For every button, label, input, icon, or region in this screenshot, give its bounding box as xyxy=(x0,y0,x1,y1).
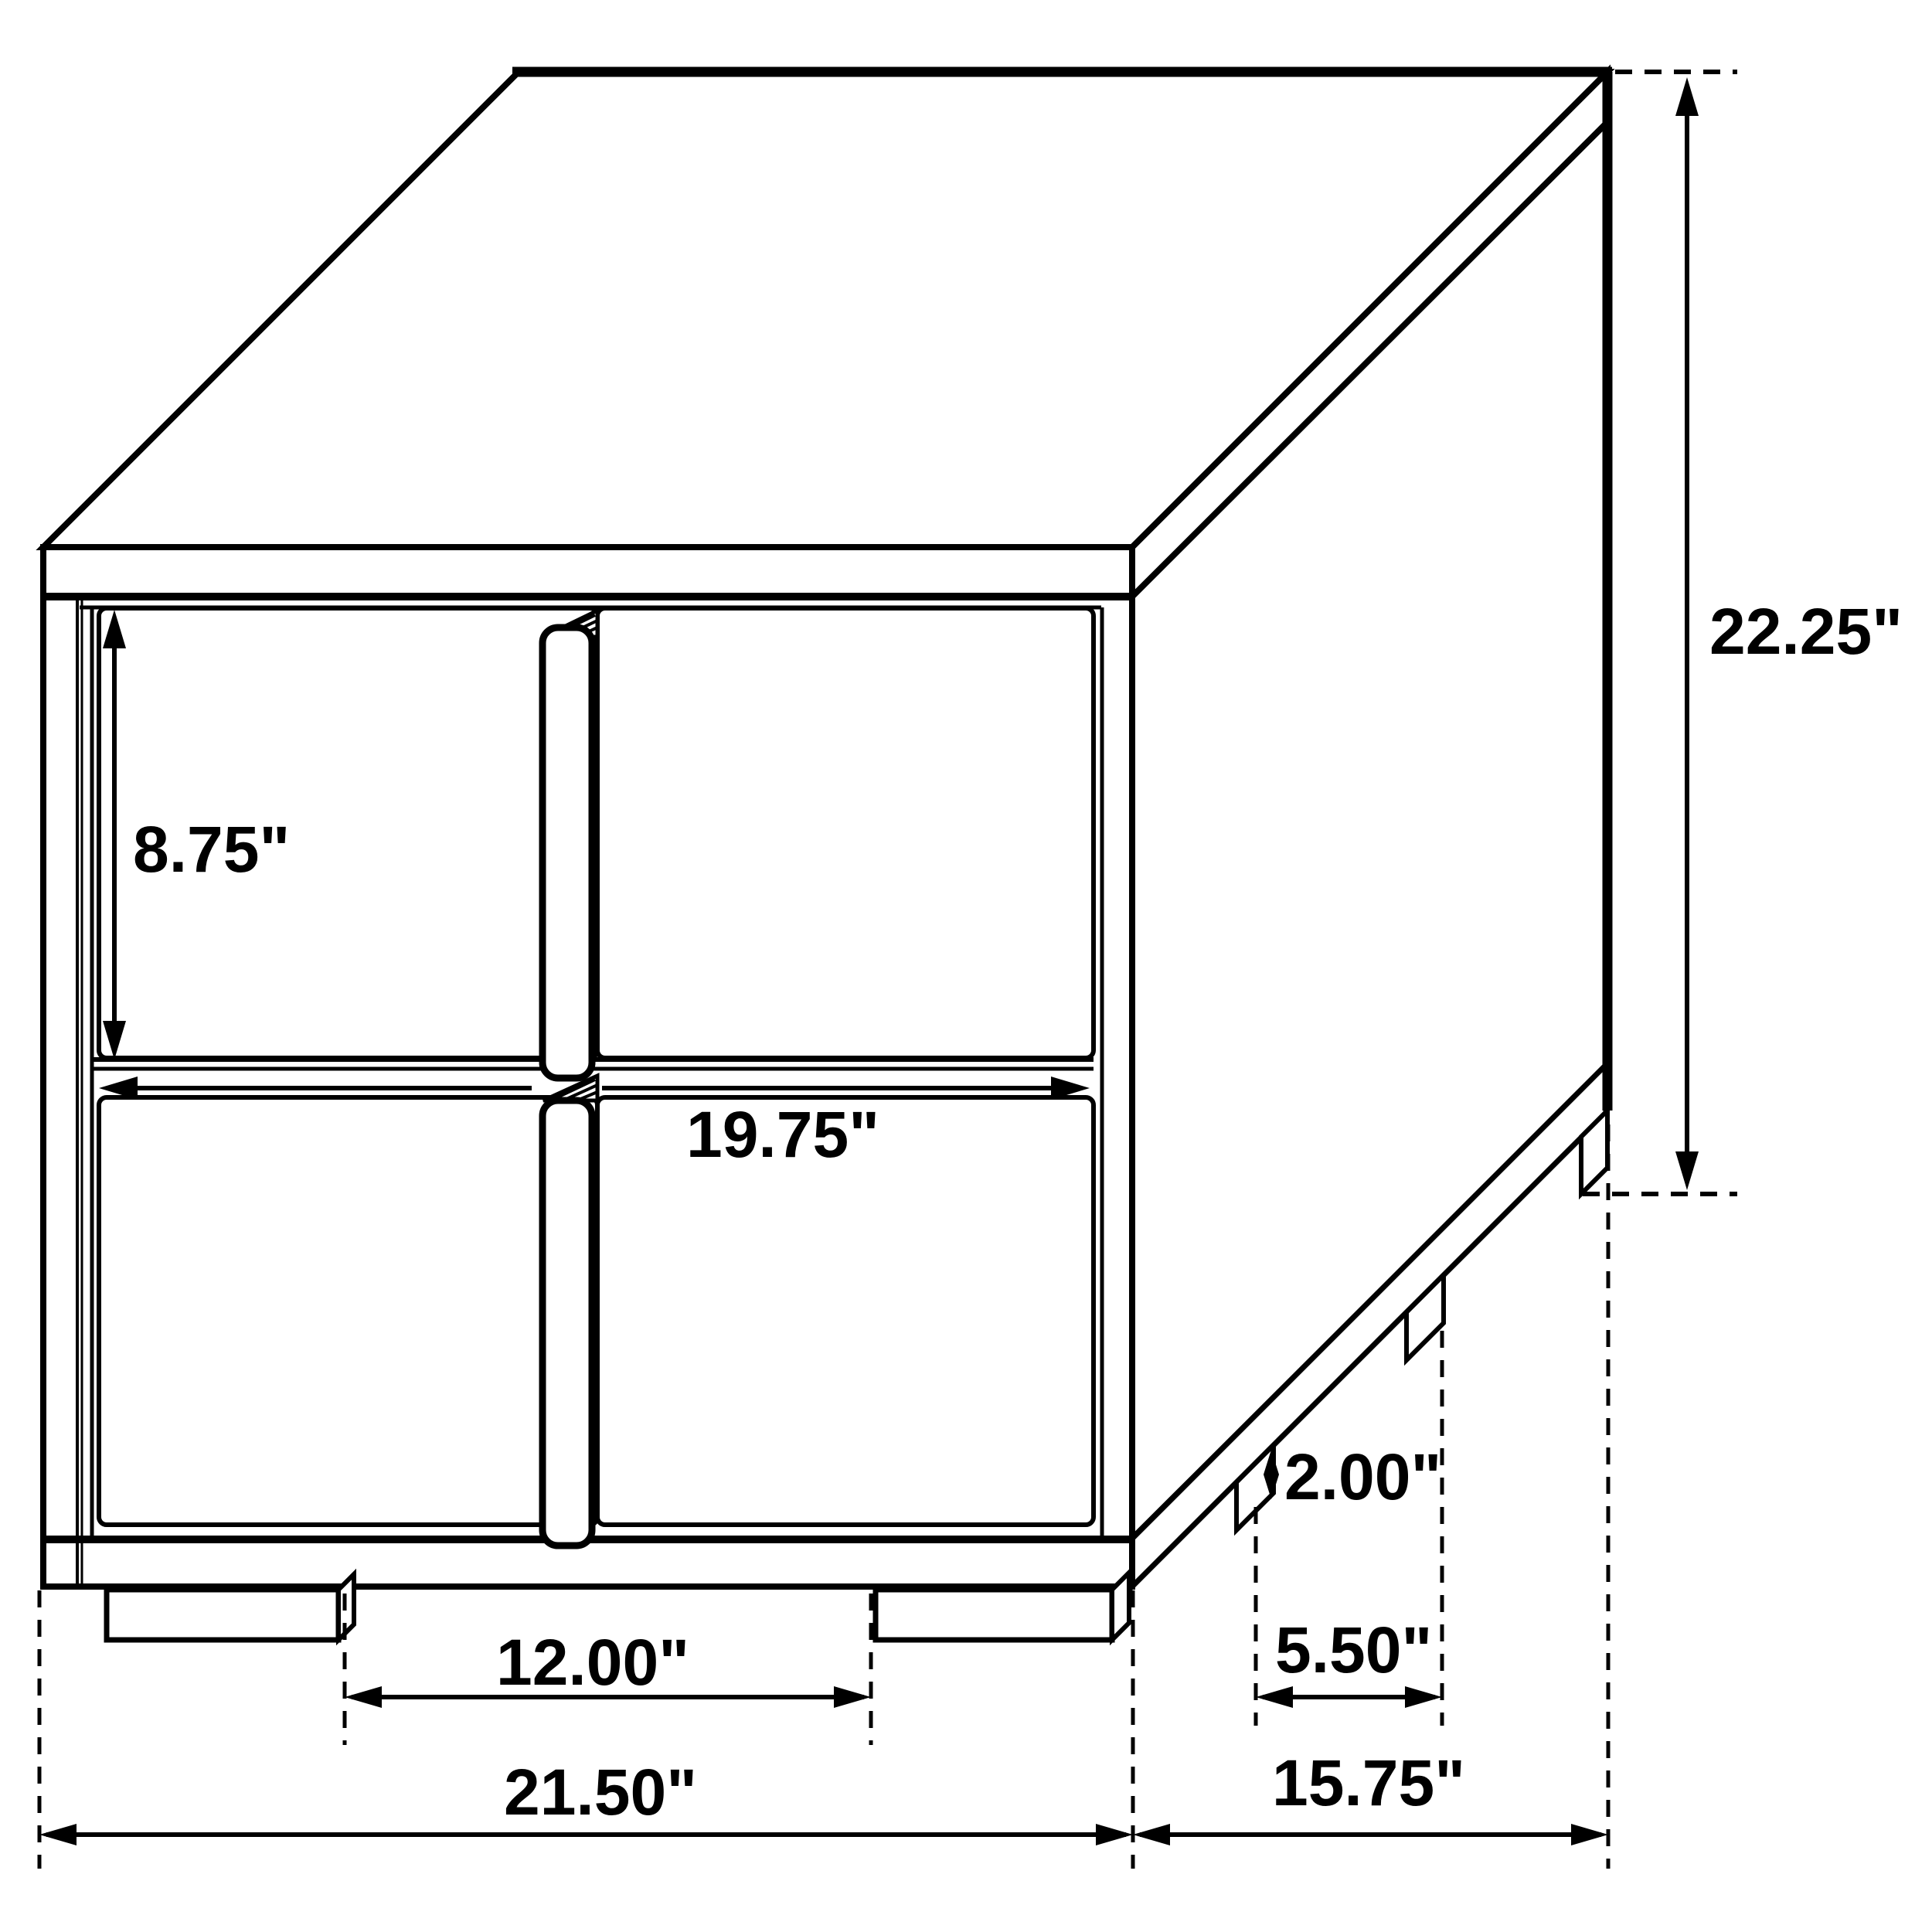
dim-label-overall-depth: 15.75" xyxy=(1272,1747,1465,1819)
drawer-handles xyxy=(543,611,597,1546)
dim-label-overall-height: 22.25" xyxy=(1709,595,1903,668)
dim-label-front-foot-spacing: 12.00" xyxy=(496,1626,689,1699)
upper-drawer-right-panel xyxy=(597,608,1094,1058)
arrowhead-left xyxy=(39,1824,77,1845)
arrowhead-right xyxy=(1405,1686,1442,1708)
arrowhead-down xyxy=(1675,1151,1699,1190)
foot-front-left xyxy=(107,1590,338,1640)
arrowhead-right xyxy=(1096,1824,1133,1845)
dim-front-foot-spacing: 12.00" xyxy=(345,1594,871,1745)
lower-handle xyxy=(543,1076,597,1546)
dim-label-overall-width: 21.50" xyxy=(504,1756,697,1828)
arrowhead-right xyxy=(1571,1824,1608,1845)
arrowhead-up xyxy=(1675,77,1699,116)
arrowhead-left xyxy=(1133,1824,1170,1845)
arrowhead-left xyxy=(345,1686,382,1708)
dim-overall-height: 22.25" xyxy=(1583,72,1903,1194)
dim-label-drawer-height: 8.75" xyxy=(133,813,290,886)
upper-handle-bar xyxy=(543,628,592,1078)
nightstand-dimension-diagram: 8.75" 19.75" 22.25" 2.00" 5.50" xyxy=(0,0,1932,1932)
foot-front-right xyxy=(876,1590,1112,1640)
lower-handle-bar xyxy=(543,1100,592,1546)
dim-label-foot-height: 2.00" xyxy=(1284,1440,1441,1513)
dim-label-drawer-width: 19.75" xyxy=(686,1098,879,1171)
lower-drawer-left-panel xyxy=(99,1097,597,1525)
upper-handle xyxy=(543,611,597,1078)
arrowhead-left xyxy=(1256,1686,1293,1708)
dim-label-side-foot-spacing: 5.50" xyxy=(1275,1614,1432,1686)
diagram-canvas: 8.75" 19.75" 22.25" 2.00" 5.50" xyxy=(0,0,1932,1932)
dim-foot-height: 2.00" xyxy=(1264,1440,1441,1513)
arrowhead-right xyxy=(834,1686,871,1708)
